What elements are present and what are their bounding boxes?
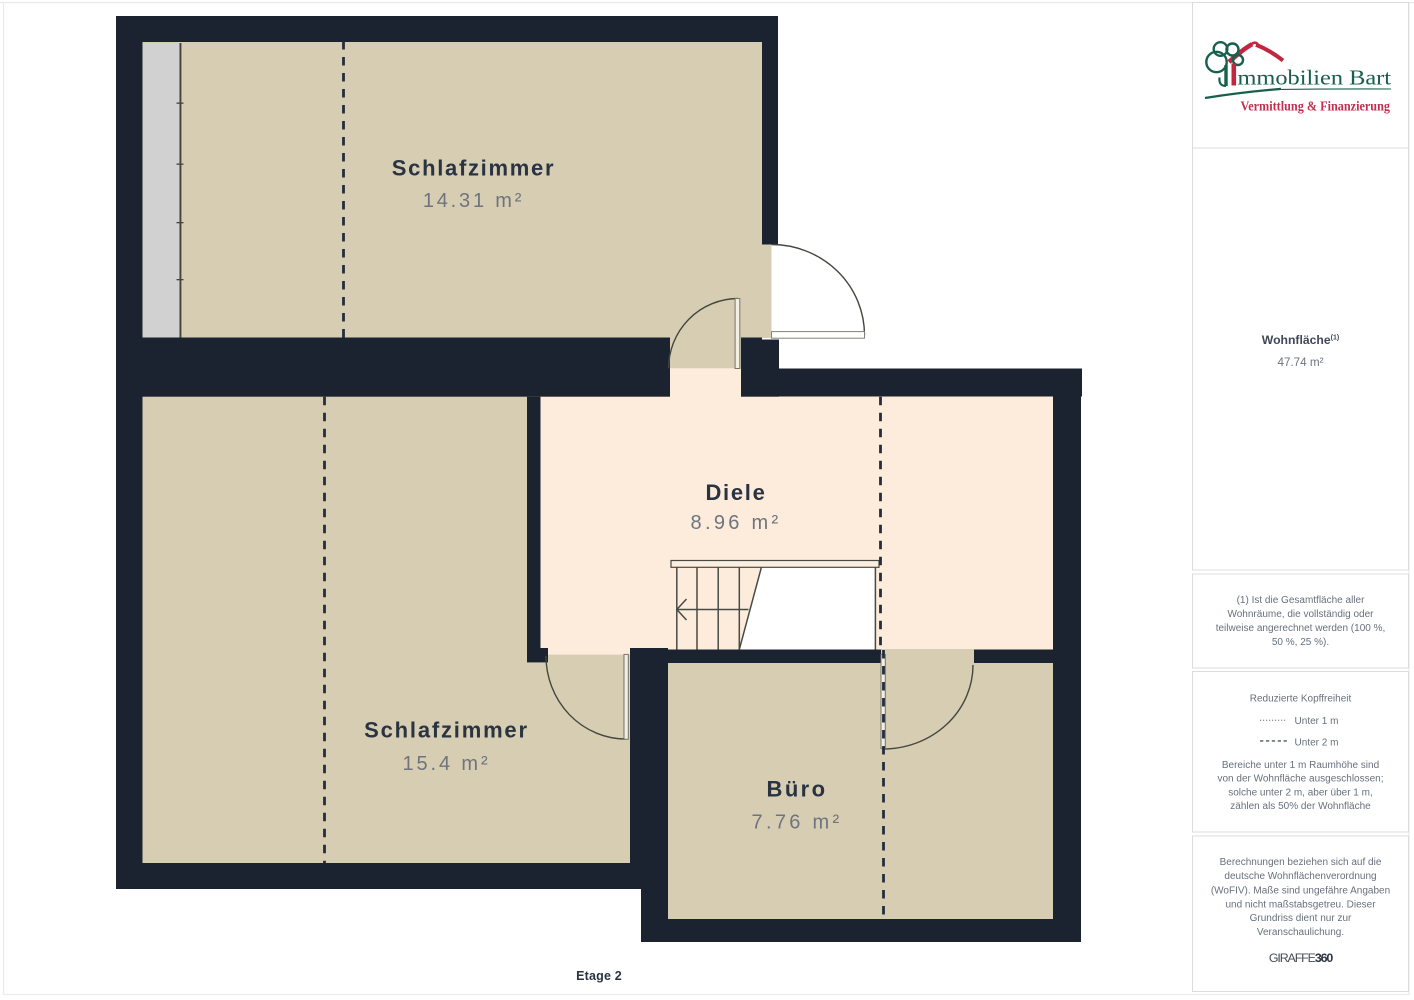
svg-text:Reduzierte Kopffreiheit: Reduzierte Kopffreiheit xyxy=(1250,694,1352,705)
svg-text:7.76 m²: 7.76 m² xyxy=(752,812,843,834)
svg-text:von der Wohnfläche ausgeschlos: von der Wohnfläche ausgeschlossen; xyxy=(1217,774,1383,785)
svg-text:14.31 m²: 14.31 m² xyxy=(423,190,524,212)
svg-text:Büro: Büro xyxy=(767,777,828,802)
svg-text:Veranschaulichung.: Veranschaulichung. xyxy=(1257,927,1344,938)
svg-text:GIRAFFE360: GIRAFFE360 xyxy=(1269,951,1334,965)
svg-text:Berechnungen beziehen sich auf: Berechnungen beziehen sich auf die xyxy=(1220,857,1382,868)
svg-text:teilweise angerechnet werden (: teilweise angerechnet werden (100 %, xyxy=(1216,623,1386,634)
svg-text:Schlafzimmer: Schlafzimmer xyxy=(364,718,529,743)
svg-text:Bereiche unter 1 m Raumhöhe si: Bereiche unter 1 m Raumhöhe sind xyxy=(1222,760,1379,771)
svg-text:Diele: Diele xyxy=(705,480,766,505)
svg-text:deutsche Wohnflächenverordnung: deutsche Wohnflächenverordnung xyxy=(1224,871,1376,882)
svg-text:Grundriss dient nur zur: Grundriss dient nur zur xyxy=(1250,913,1352,924)
svg-text:zählen als 50% der Wohnfläche: zählen als 50% der Wohnfläche xyxy=(1230,801,1371,812)
svg-text:(1) Ist die Gesamtfläche aller: (1) Ist die Gesamtfläche aller xyxy=(1237,595,1365,606)
svg-text:15.4 m²: 15.4 m² xyxy=(402,753,490,775)
svg-text:Unter 1 m: Unter 1 m xyxy=(1295,716,1339,727)
svg-text:Wohnräume, die vollständig ode: Wohnräume, die vollständig oder xyxy=(1227,609,1374,620)
svg-text:47.74 m²: 47.74 m² xyxy=(1277,356,1323,369)
svg-text:Wohnfläche(1): Wohnfläche(1) xyxy=(1262,333,1339,347)
svg-text:mmobilien Bart: mmobilien Bart xyxy=(1238,66,1392,90)
svg-text:Vermittlung & Finanzierung: Vermittlung & Finanzierung xyxy=(1241,99,1391,114)
svg-text:Unter 2 m: Unter 2 m xyxy=(1295,738,1339,749)
svg-text:solche unter 2 m, aber über 1: solche unter 2 m, aber über 1 m, xyxy=(1228,787,1373,798)
svg-text:und nicht maßstabsgetreu. Dies: und nicht maßstabsgetreu. Dieser xyxy=(1225,899,1376,910)
svg-text:(WoFIV). Maße sind ungefähre A: (WoFIV). Maße sind ungefähre Angaben xyxy=(1211,885,1390,896)
svg-text:50 %, 25 %).: 50 %, 25 %). xyxy=(1272,637,1329,648)
svg-text:8.96 m²: 8.96 m² xyxy=(691,512,782,534)
svg-text:Etage 2: Etage 2 xyxy=(576,969,622,983)
svg-text:Schlafzimmer: Schlafzimmer xyxy=(392,156,555,181)
